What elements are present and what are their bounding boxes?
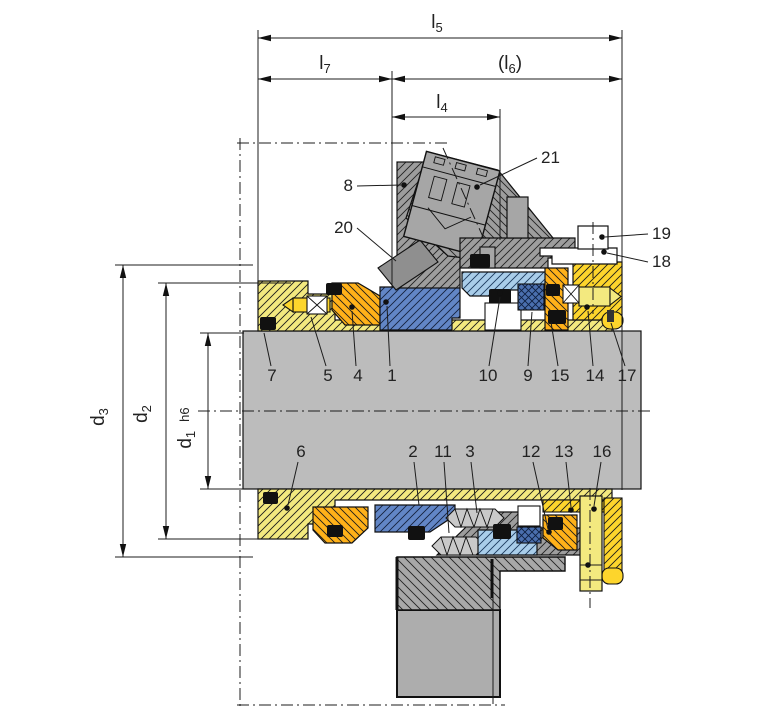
gasket-9 xyxy=(518,284,544,310)
label-12: 12 xyxy=(522,442,541,461)
label-15: 15 xyxy=(551,366,570,385)
retainer-upper xyxy=(485,303,521,330)
label-5: 5 xyxy=(323,366,332,385)
collar-lower-bulge xyxy=(602,568,623,584)
housing-solid-block xyxy=(397,610,500,697)
label-9: 9 xyxy=(523,366,532,385)
oring-13 xyxy=(548,517,563,530)
oring-15b xyxy=(548,310,566,324)
label-10: 10 xyxy=(479,366,498,385)
secondary-port-plug xyxy=(507,197,528,238)
oring-lower-left xyxy=(263,492,278,504)
oring-seat-lower xyxy=(493,524,511,539)
oring-15a xyxy=(546,284,560,296)
retainer-lower xyxy=(518,506,540,526)
label-18: 18 xyxy=(652,252,671,271)
set-screw-16 xyxy=(580,496,602,591)
label-17: 17 xyxy=(618,366,637,385)
label-21: 21 xyxy=(541,148,560,167)
label-8: 8 xyxy=(344,176,353,195)
oring-thrust-lower xyxy=(327,525,343,537)
oring-gland xyxy=(470,254,490,268)
label-3: 3 xyxy=(465,442,474,461)
label-16: 16 xyxy=(593,442,612,461)
oring-seal-ring-2 xyxy=(408,526,425,540)
label-4: 4 xyxy=(353,366,362,385)
snap-ring-17 xyxy=(607,310,614,322)
label-6: 6 xyxy=(296,442,305,461)
label-2: 2 xyxy=(408,442,417,461)
oring-7 xyxy=(260,317,276,330)
label-7: 7 xyxy=(267,366,276,385)
label-20: 20 xyxy=(334,218,353,237)
label-11: 11 xyxy=(434,442,452,461)
technical-drawing-mechanical-seal: l5 l7 (l6) l4 d3 d2 d1h6 8 20 21 xyxy=(0,0,768,716)
seal-cross-section-svg: l5 l7 (l6) l4 d3 d2 d1h6 8 20 21 xyxy=(0,0,768,716)
oring-4 xyxy=(326,283,342,295)
shaft xyxy=(243,331,641,489)
label-1: 1 xyxy=(387,366,396,385)
gasket-lower xyxy=(517,527,541,543)
label-14: 14 xyxy=(586,366,605,385)
label-19: 19 xyxy=(652,224,671,243)
collar-lower-rim xyxy=(604,498,622,574)
label-13: 13 xyxy=(555,442,574,461)
